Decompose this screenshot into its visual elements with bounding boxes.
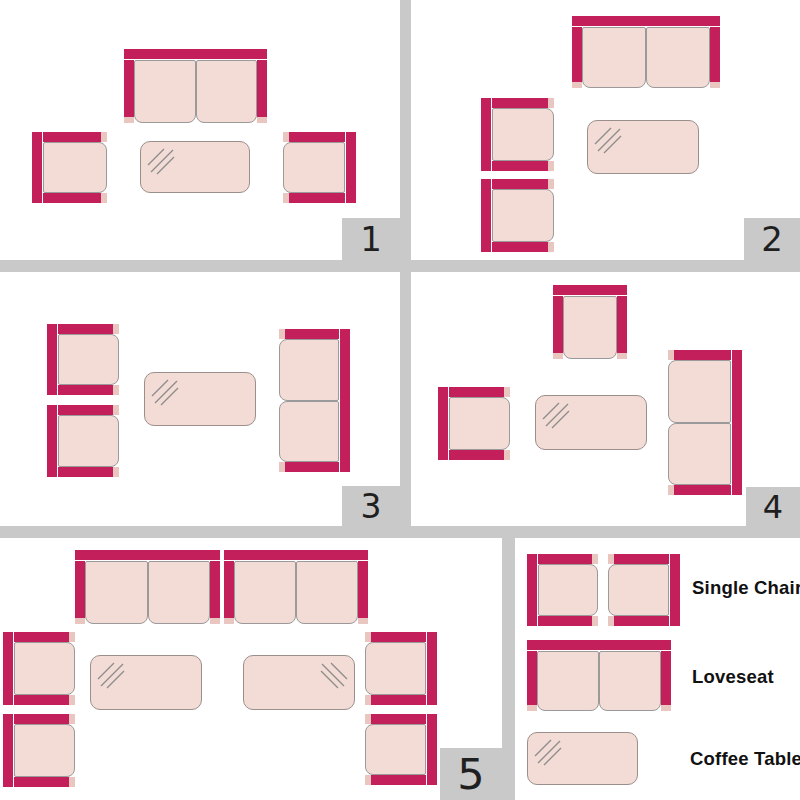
seat-cushion (279, 401, 339, 463)
seat-cushion (538, 564, 598, 616)
loveseat (224, 550, 368, 624)
single-chair (438, 387, 510, 460)
seat-cushion (148, 561, 211, 624)
arm-bar (58, 467, 119, 477)
arm-cap (124, 117, 134, 123)
loveseat (527, 640, 671, 711)
single-chair (365, 714, 437, 785)
arm-bar (283, 193, 345, 203)
arm-bar (449, 450, 510, 460)
single-chair (553, 285, 627, 359)
arm-bar (661, 651, 671, 711)
arm-cap (553, 353, 563, 359)
panel-4-number-badge: 4 (746, 487, 800, 526)
arm-bar (527, 651, 537, 711)
arm-cap (279, 462, 285, 472)
arm-bar (279, 329, 339, 339)
back-bar (224, 550, 368, 560)
seat-cushion (646, 27, 710, 88)
arm-bar (492, 98, 554, 108)
arm-bar (617, 296, 627, 359)
arm-bar (14, 632, 75, 642)
panel-1-number-badge: 1 (342, 218, 400, 260)
seat-cushion (599, 651, 661, 711)
arm-bar (608, 554, 669, 564)
arm-cap (661, 705, 671, 711)
back-bar (427, 632, 437, 705)
arm-bar (58, 385, 119, 395)
back-bar (47, 405, 57, 477)
seat-cushion (196, 60, 258, 123)
arm-bar (365, 775, 426, 785)
arm-bar (710, 27, 720, 88)
single-chair (3, 714, 75, 787)
furniture-arrangement-diagram: Single Chair Loveseat Coffee Table 12345 (0, 0, 800, 800)
single-chair (365, 632, 437, 705)
seat-cushion (279, 339, 339, 401)
glass-shine-icon (539, 399, 573, 433)
single-chair (3, 632, 75, 705)
single-chair (47, 405, 119, 477)
back-bar (553, 285, 627, 295)
arm-cap (283, 193, 289, 203)
seat-cushion (365, 642, 426, 695)
seat-cushion (668, 423, 731, 486)
seat-cushion (563, 296, 617, 359)
seat-cushion (608, 564, 669, 616)
arm-cap (69, 777, 75, 787)
seat-cushion (14, 642, 75, 695)
coffee-table (90, 655, 202, 710)
loveseat (572, 16, 720, 88)
arm-cap (69, 714, 75, 724)
single-chair (283, 132, 356, 203)
arm-cap (279, 329, 285, 339)
back-bar (670, 554, 680, 626)
arm-bar (14, 777, 75, 787)
legend-label-single-chair: Single Chair (692, 577, 800, 599)
loveseat (75, 550, 220, 624)
panel-gutter (0, 526, 800, 538)
panel-gutter (0, 260, 800, 272)
arm-cap (572, 82, 582, 88)
back-bar (732, 350, 742, 495)
arm-bar (257, 60, 267, 123)
arm-cap (365, 632, 371, 642)
seat-cushion (492, 108, 554, 161)
back-bar (3, 632, 13, 705)
seat-cushion (537, 651, 599, 711)
arm-cap (527, 705, 537, 711)
back-bar (75, 550, 220, 560)
arm-cap (548, 161, 554, 171)
arm-bar (449, 387, 510, 397)
arm-bar (14, 714, 75, 724)
back-bar (481, 179, 491, 252)
arm-cap (75, 618, 85, 624)
arm-cap (283, 132, 289, 142)
arm-cap (113, 385, 119, 395)
coffee-table (144, 372, 256, 426)
panel-gutter (502, 538, 515, 800)
arm-bar (210, 561, 220, 624)
back-bar (527, 554, 537, 626)
arm-bar (224, 561, 234, 624)
seat-cushion (58, 334, 119, 385)
arm-cap (668, 350, 674, 360)
back-bar (346, 132, 356, 203)
back-bar (481, 98, 491, 171)
arm-cap (365, 714, 371, 724)
panel-3-number-badge: 3 (342, 486, 400, 526)
arm-cap (113, 324, 119, 334)
arm-cap (210, 618, 220, 624)
seat-cushion (134, 60, 196, 123)
seat-cushion (283, 142, 345, 193)
arm-cap (548, 242, 554, 252)
arm-bar (58, 324, 119, 334)
arm-bar (492, 179, 554, 189)
arm-bar (492, 242, 554, 252)
arm-cap (608, 554, 614, 564)
back-bar (438, 387, 448, 460)
arm-cap (592, 616, 598, 626)
seat-cushion (43, 142, 107, 193)
arm-bar (58, 405, 119, 415)
coffee-table (587, 120, 699, 174)
arm-cap (113, 405, 119, 415)
arm-bar (279, 462, 339, 472)
coffee-table (527, 732, 638, 785)
single-chair (481, 98, 554, 171)
arm-bar (572, 27, 582, 88)
arm-cap (101, 193, 107, 203)
arm-bar (538, 554, 598, 564)
panel-2-number-badge: 2 (744, 218, 800, 260)
arm-cap (592, 554, 598, 564)
single-chair (608, 554, 680, 626)
back-bar (527, 640, 671, 650)
seat-cushion (492, 189, 554, 242)
single-chair (47, 324, 119, 395)
glass-shine-icon (591, 124, 625, 158)
seat-cushion (85, 561, 148, 624)
coffee-table (243, 655, 355, 710)
loveseat (124, 49, 267, 123)
arm-bar (358, 561, 368, 624)
arm-cap (504, 450, 510, 460)
arm-bar (365, 632, 426, 642)
back-bar (124, 49, 267, 59)
arm-bar (43, 132, 107, 142)
seat-cushion (234, 561, 296, 624)
arm-cap (257, 117, 267, 123)
legend-label-loveseat: Loveseat (692, 666, 774, 688)
arm-bar (365, 714, 426, 724)
single-chair (527, 554, 598, 626)
seat-cushion (365, 724, 426, 775)
back-bar (47, 324, 57, 395)
back-bar (3, 714, 13, 787)
arm-bar (608, 616, 669, 626)
arm-cap (358, 618, 368, 624)
back-bar (32, 132, 42, 203)
back-bar (340, 329, 350, 472)
arm-bar (124, 60, 134, 123)
glass-shine-icon (531, 736, 565, 770)
arm-bar (553, 296, 563, 359)
arm-cap (365, 695, 371, 705)
loveseat (668, 350, 742, 495)
coffee-table (140, 141, 250, 193)
coffee-table (535, 395, 647, 450)
arm-cap (668, 485, 674, 495)
seat-cushion (14, 724, 75, 777)
arm-bar (365, 695, 426, 705)
arm-cap (548, 98, 554, 108)
arm-bar (538, 616, 598, 626)
arm-bar (14, 695, 75, 705)
glass-shine-icon (94, 659, 128, 693)
legend-label-coffee-table: Coffee Table (690, 748, 800, 770)
arm-cap (617, 353, 627, 359)
arm-bar (492, 161, 554, 171)
arm-bar (668, 485, 731, 495)
arm-bar (75, 561, 85, 624)
arm-cap (365, 775, 371, 785)
arm-cap (710, 82, 720, 88)
arm-cap (101, 132, 107, 142)
arm-bar (668, 350, 731, 360)
arm-cap (608, 616, 614, 626)
arm-cap (113, 467, 119, 477)
arm-cap (69, 695, 75, 705)
seat-cushion (668, 360, 731, 423)
seat-cushion (58, 415, 119, 467)
arm-cap (69, 632, 75, 642)
arm-cap (224, 618, 234, 624)
glass-shine-icon (317, 659, 351, 693)
seat-cushion (296, 561, 358, 624)
arm-cap (548, 179, 554, 189)
panel-5-number-badge: 5 (440, 748, 502, 800)
arm-bar (283, 132, 345, 142)
single-chair (32, 132, 107, 203)
back-bar (427, 714, 437, 785)
loveseat (279, 329, 350, 472)
glass-shine-icon (144, 145, 178, 179)
glass-shine-icon (148, 376, 182, 410)
arm-cap (504, 387, 510, 397)
seat-cushion (449, 397, 510, 450)
back-bar (572, 16, 720, 26)
arm-bar (43, 193, 107, 203)
seat-cushion (582, 27, 646, 88)
single-chair (481, 179, 554, 252)
